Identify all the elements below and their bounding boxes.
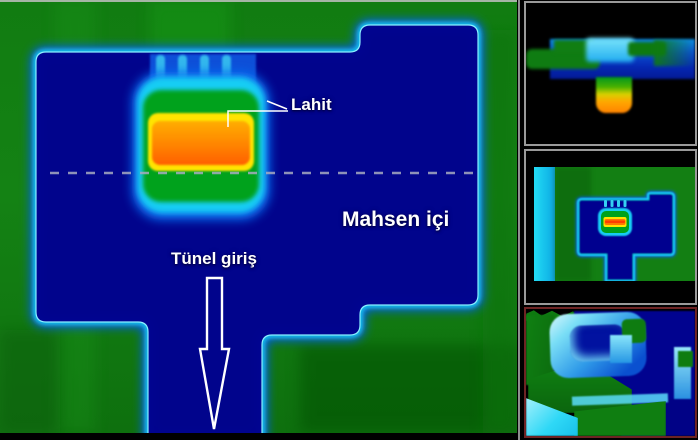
cross-section-panel bbox=[524, 1, 697, 146]
three-d-view-panel bbox=[524, 307, 697, 438]
top-frame-line bbox=[0, 0, 517, 2]
tunel-annotation: Tünel giriş bbox=[171, 249, 257, 269]
xsec-green-fade bbox=[654, 40, 695, 66]
p3-right-wall-green-cap bbox=[678, 351, 693, 367]
mini-lahit-target bbox=[598, 208, 632, 236]
mahsen-annotation: Mahsen içi bbox=[342, 208, 449, 232]
cross-section-image bbox=[526, 3, 695, 144]
lahit-target bbox=[132, 72, 270, 220]
bottom-black-bar bbox=[0, 433, 517, 440]
mini-plan-panel bbox=[524, 149, 697, 305]
mini-anomaly bbox=[534, 167, 695, 281]
mini-plan-frame bbox=[526, 151, 695, 303]
gpr-survey-figure: Lahit Mahsen içi Tünel giriş bbox=[0, 0, 698, 440]
p3-mid-cyan-wall bbox=[610, 335, 632, 363]
xsec-lahit-blob bbox=[596, 77, 632, 113]
lahit-annotation: Lahit bbox=[291, 95, 332, 115]
xsec-cyan-core bbox=[586, 38, 634, 62]
three-d-image bbox=[526, 309, 695, 436]
mini-plan-image bbox=[534, 167, 695, 281]
vertical-divider-line bbox=[518, 0, 520, 440]
